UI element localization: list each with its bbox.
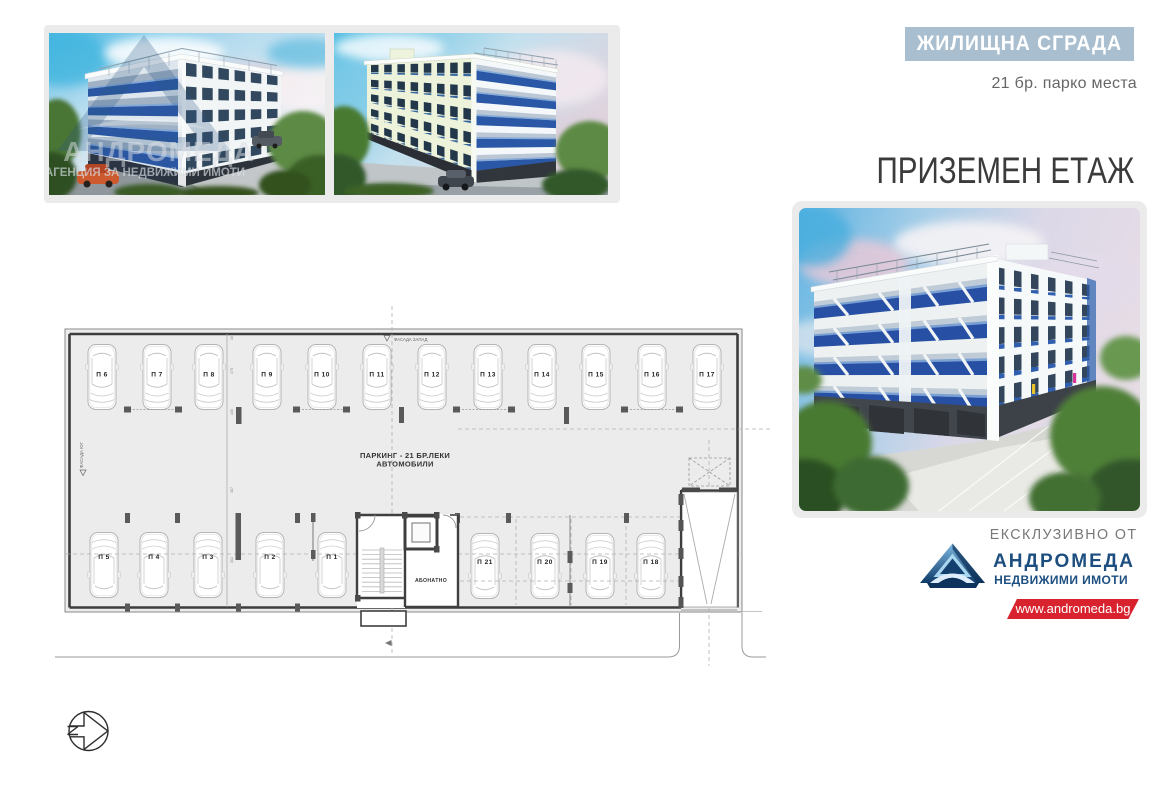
svg-text:475: 475 bbox=[230, 368, 234, 374]
svg-text:ФАСАДА ЮГ: ФАСАДА ЮГ bbox=[79, 442, 84, 468]
svg-text:П 13: П 13 bbox=[480, 372, 496, 379]
svg-text:30: 30 bbox=[230, 336, 234, 340]
svg-text:П 2: П 2 bbox=[264, 554, 276, 561]
svg-text:П 9: П 9 bbox=[261, 372, 273, 379]
svg-text:П 19: П 19 bbox=[592, 559, 608, 566]
svg-text:П 15: П 15 bbox=[588, 372, 604, 379]
svg-text:П 7: П 7 bbox=[151, 372, 163, 379]
svg-text:П 3: П 3 bbox=[202, 554, 214, 561]
svg-text:П 1: П 1 bbox=[326, 554, 338, 561]
svg-text:П 17: П 17 bbox=[699, 372, 715, 379]
svg-text:302: 302 bbox=[230, 557, 234, 563]
svg-text:П 11: П 11 bbox=[369, 372, 384, 379]
svg-text:АБОНАТНО: АБОНАТНО bbox=[415, 578, 447, 584]
svg-text:П 16: П 16 bbox=[644, 372, 660, 379]
svg-text:П 21: П 21 bbox=[477, 559, 493, 566]
svg-text:ФАСАДА ЗАПАД: ФАСАДА ЗАПАД bbox=[394, 337, 427, 342]
svg-text:387: 387 bbox=[230, 487, 234, 493]
svg-text:АВТОМОБИЛИ: АВТОМОБИЛИ bbox=[376, 460, 433, 469]
svg-text:П 6: П 6 bbox=[96, 372, 108, 379]
svg-text:П 8: П 8 bbox=[203, 372, 215, 379]
svg-text:П 18: П 18 bbox=[643, 559, 659, 566]
svg-text:П 5: П 5 bbox=[98, 554, 110, 561]
svg-text:П 14: П 14 bbox=[534, 372, 550, 379]
svg-text:П 10: П 10 bbox=[314, 372, 330, 379]
svg-text:П 20: П 20 bbox=[537, 559, 553, 566]
svg-text:П 4: П 4 bbox=[148, 554, 160, 561]
svg-text:П 12: П 12 bbox=[424, 372, 440, 379]
svg-text:105: 105 bbox=[230, 409, 234, 415]
